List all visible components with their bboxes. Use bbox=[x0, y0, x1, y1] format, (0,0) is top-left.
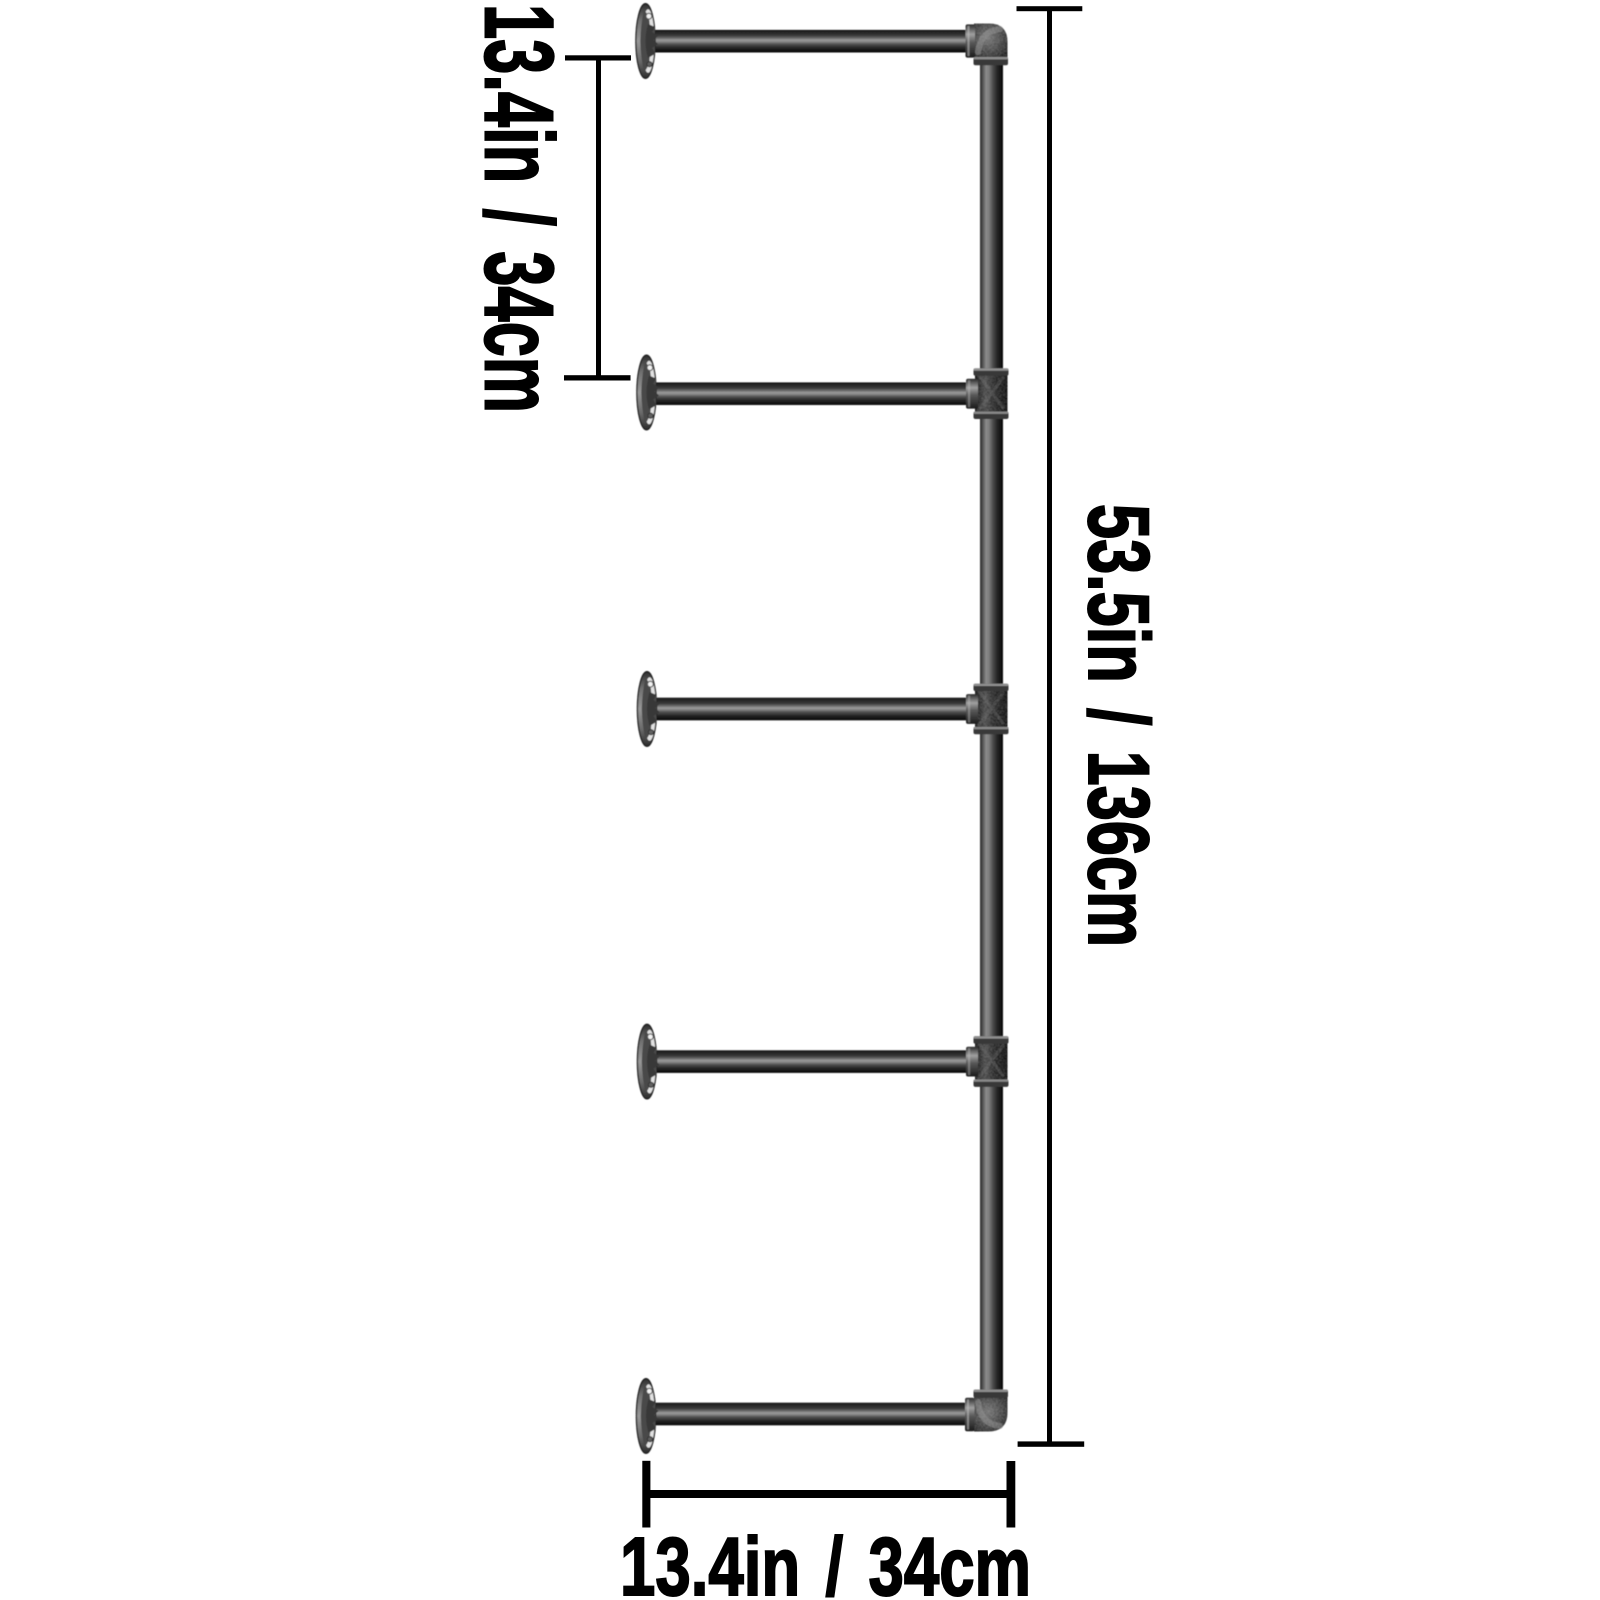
svg-text:13.4in / 34cm: 13.4in / 34cm bbox=[620, 1520, 1031, 1600]
svg-text:13.4in / 34cm: 13.4in / 34cm bbox=[464, 4, 572, 413]
